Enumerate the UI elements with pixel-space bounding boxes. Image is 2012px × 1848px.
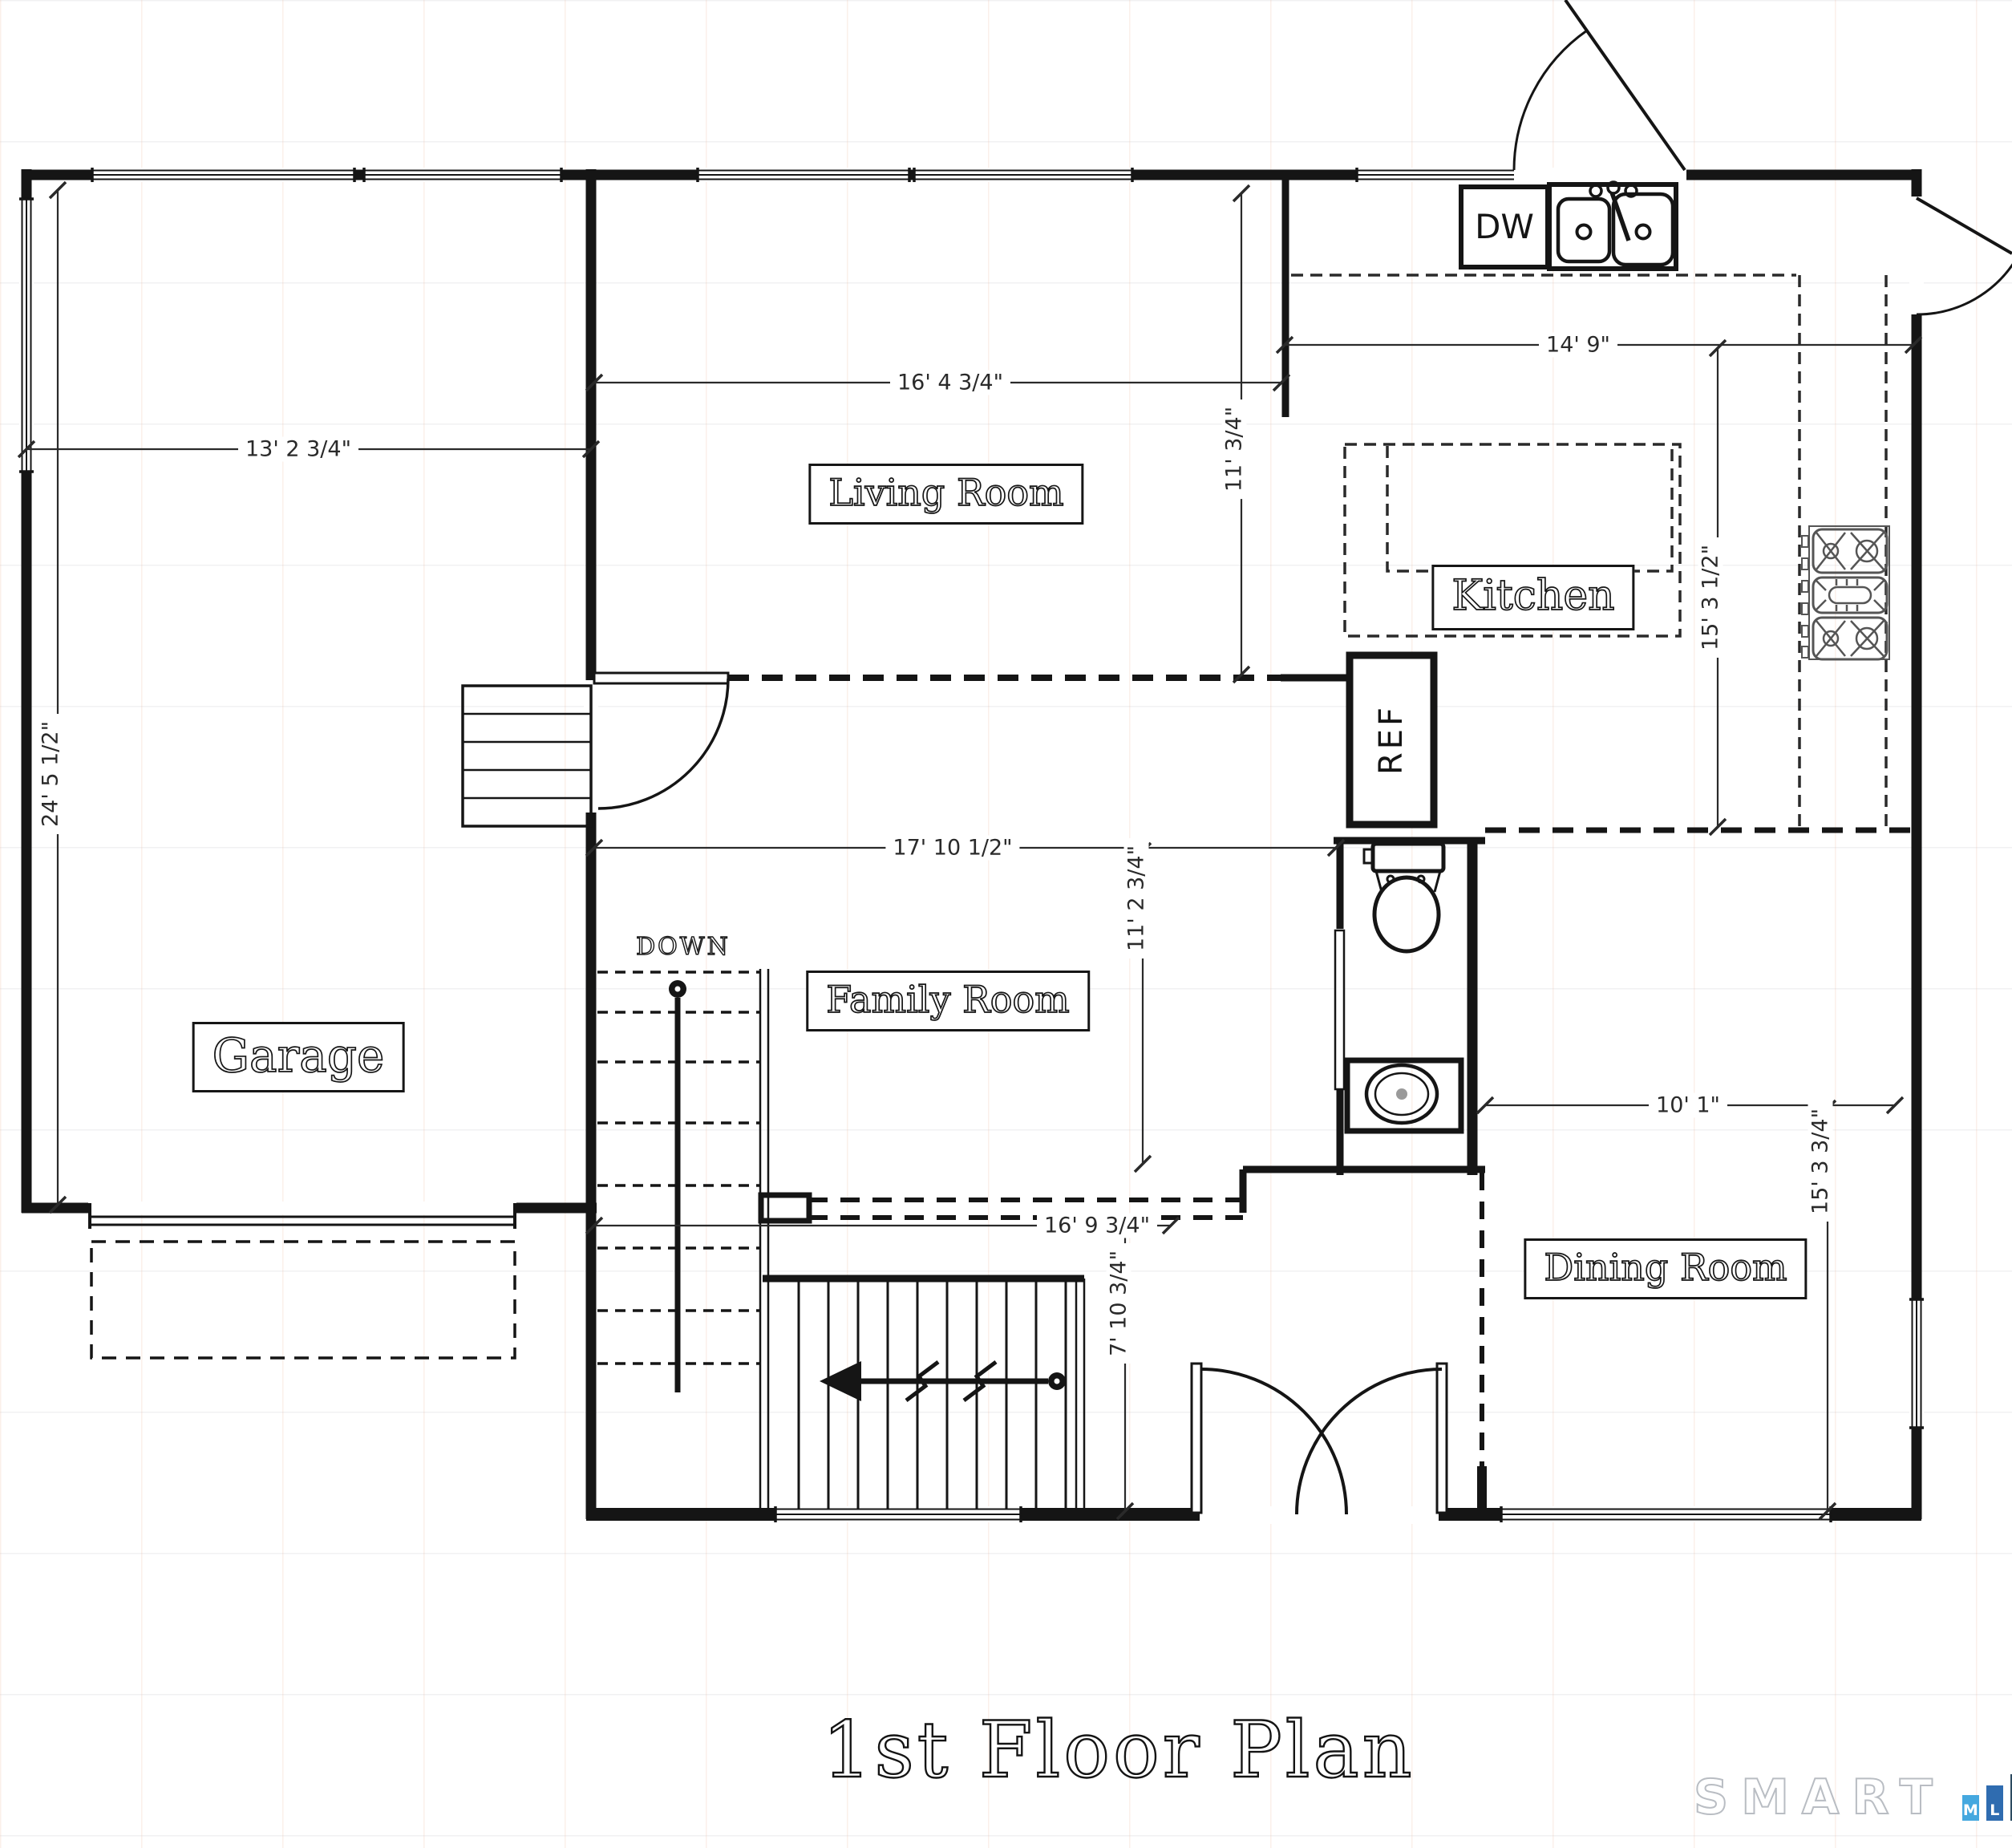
stairs — [597, 969, 1084, 1510]
dim-garage-width: 13' 2 3/4" — [238, 437, 358, 462]
garage-label: Garage — [192, 1022, 405, 1092]
dim-family-depth: 11' 2 3/4" — [1124, 838, 1149, 958]
dishwasher-label: DW — [1475, 210, 1534, 244]
garage-door-opening — [88, 1202, 516, 1214]
toilet — [1364, 844, 1443, 951]
entry-double-doors — [1192, 1364, 1447, 1514]
up-arrow — [820, 1361, 1066, 1401]
window — [19, 199, 34, 472]
page-title: 1st Floor Plan — [822, 1712, 1415, 1789]
living-room-label: Living Room — [808, 464, 1083, 525]
garage-door — [90, 1203, 515, 1358]
dim-dining-depth: 15' 3 3/4" — [1808, 1101, 1833, 1222]
dim-kitchen-width: 14' 9" — [1539, 333, 1617, 358]
window — [914, 168, 1132, 182]
window — [92, 168, 354, 182]
dim-kitchen-depth: 15' 3 1/2" — [1698, 537, 1723, 658]
dim-hall-width: 16' 9 3/4" — [1037, 1214, 1157, 1238]
dim-living-width: 16' 4 3/4" — [890, 371, 1010, 395]
dim-living-depth: 11' 3/4" — [1222, 399, 1247, 499]
bathroom-fixtures — [1347, 844, 1461, 1131]
side-door-opening — [1909, 197, 1924, 314]
floor-plan-drawing — [0, 0, 2012, 1848]
window — [1501, 1506, 1831, 1522]
dim-garage-depth: 24' 5 1/2" — [38, 714, 63, 834]
down-label: DOWN — [636, 935, 731, 959]
front-entry-opening — [1200, 1506, 1439, 1524]
window — [775, 1506, 1021, 1522]
vanity-sink — [1347, 1060, 1461, 1131]
floor-plan-page: Living Room Kitchen Garage Family Room D… — [0, 0, 2012, 1848]
kitchen-sink — [1549, 182, 1676, 269]
back-door — [1514, 0, 1685, 170]
garage-entry-door — [594, 673, 728, 808]
window — [698, 168, 909, 182]
back-door-opening — [1514, 168, 1686, 182]
dining-room-label: Dining Room — [1524, 1238, 1807, 1299]
family-room-label: Family Room — [806, 971, 1090, 1031]
window — [1357, 168, 1514, 182]
side-door — [1917, 198, 2012, 314]
cased-openings — [728, 678, 1910, 1466]
kitchen-island-counter — [1387, 446, 1672, 571]
range-stove — [1802, 526, 1889, 659]
dim-vestibule-depth: 7' 10 3/4" — [1107, 1243, 1131, 1364]
upper-stairs — [799, 1282, 1066, 1510]
driveway-apron — [91, 1242, 515, 1358]
window — [364, 168, 561, 182]
smartmls-bar-m: M — [1962, 1795, 1979, 1821]
garage-steps — [463, 686, 591, 826]
smartmls-bar-l-letter: L — [1990, 1803, 1999, 1821]
smartmls-bar-m-letter: M — [1963, 1803, 1978, 1821]
bathroom-door — [1335, 930, 1344, 1089]
smartmls-bar-l: L — [1986, 1785, 2003, 1821]
appliances — [1350, 182, 1889, 825]
kitchen-label: Kitchen — [1431, 565, 1634, 630]
smartmls-logo: SMART M L S — [1694, 1774, 2012, 1821]
refrigerator-label: REF — [1375, 704, 1407, 775]
dim-family-width: 17' 10 1/2" — [885, 836, 1019, 861]
window — [1909, 1299, 1924, 1428]
smartmls-wordmark: SMART — [1694, 1775, 1945, 1821]
dim-dining-width: 10' 1" — [1649, 1093, 1727, 1118]
